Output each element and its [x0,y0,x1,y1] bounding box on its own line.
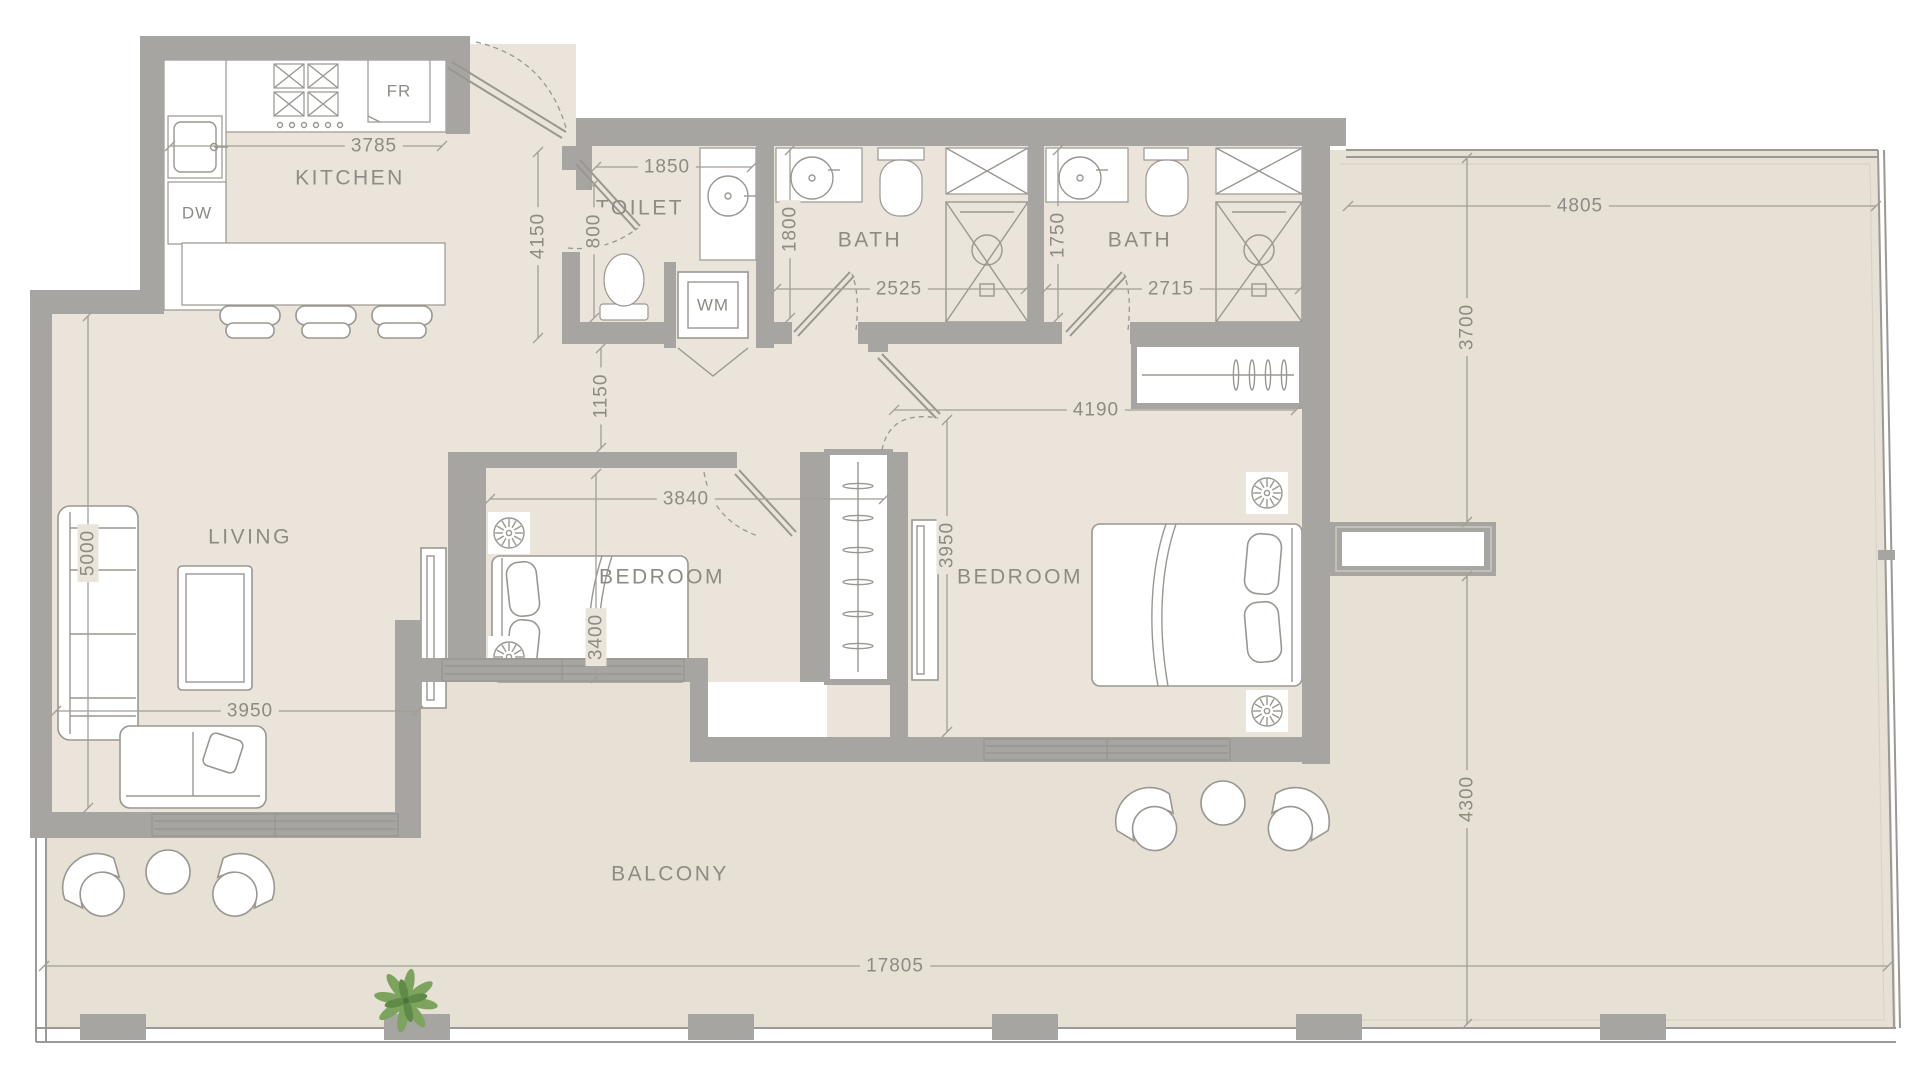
terrace-floor [1330,150,1896,1028]
bar-stool-icon [372,306,432,338]
dim-living-depth: 5000 [78,524,99,582]
appliance-label-fridge: FR [387,83,412,100]
ceiling-fan-icon [1246,472,1288,514]
appliance-label-dishwasher: DW [182,205,212,222]
bed-icon [1092,524,1302,686]
dim-living-width: 3950 [221,701,279,722]
dim-bath-b-depth: 1750 [1048,206,1069,264]
bath-a-wc-icon [878,148,924,216]
room-label-bedroom-a: BEDROOM [599,567,725,588]
floor-plan: KITCHEN TOILET BATH BATH LIVING BEDROOM … [0,0,1920,1085]
dim-kitchen-width: 3785 [345,136,403,157]
room-label-balcony: BALCONY [611,864,729,885]
dim-bath-b-width: 2715 [1142,279,1200,300]
kitchen-sink-icon [168,116,228,178]
bar-stool-icon [296,306,356,338]
sofa-two-icon [120,726,266,808]
dim-terrace-depth-north: 3700 [1457,298,1478,356]
ceiling-fan-icon [488,512,530,554]
bath-a-vanity [776,148,862,202]
kitchen-island [182,243,445,305]
dim-bedroom-a-depth: 3400 [586,608,607,666]
dim-bath-a-width: 2525 [870,279,928,300]
wardrobe-icon [1134,344,1302,406]
mirror-icon [912,520,938,680]
ceiling-fan-icon [1246,690,1288,732]
dim-bedroom-b-depth: 3950 [937,516,958,574]
room-label-living: LIVING [208,527,292,548]
balcony-table-icon [146,850,190,894]
dim-hallway-depth: 1150 [591,368,612,425]
room-label-bedroom-b: BEDROOM [957,567,1083,588]
toilet-vanity [700,148,756,260]
room-label-bath-a: BATH [838,230,902,251]
dim-terrace-depth-south: 4300 [1457,770,1478,828]
room-label-kitchen: KITCHEN [295,168,405,189]
balcony-table-icon [1201,781,1245,825]
terrace-fin-wall [1330,522,1496,576]
room-label-toilet: TOILET [596,198,684,219]
dim-kitchen-depth: 4150 [528,207,549,265]
coffee-table-icon [178,566,252,690]
dim-balcony-width: 17805 [860,956,930,977]
dim-bedroom-b-width: 4190 [1067,400,1125,421]
dim-toilet-depth: 800 [584,208,605,255]
closet-icon [827,452,890,682]
dim-terrace-width: 4805 [1551,196,1609,217]
bath-b-wc-icon [1144,148,1188,216]
bar-stool-icon [220,306,280,338]
tv-unit-icon [421,548,446,708]
dim-toilet-width: 1850 [638,157,696,178]
rail-break [1878,550,1895,560]
dim-bath-a-depth: 1800 [780,200,801,258]
dim-bedroom-a-width: 3840 [657,489,715,510]
room-label-bath-b: BATH [1108,230,1172,251]
appliance-label-washing-machine: WM [697,297,729,314]
